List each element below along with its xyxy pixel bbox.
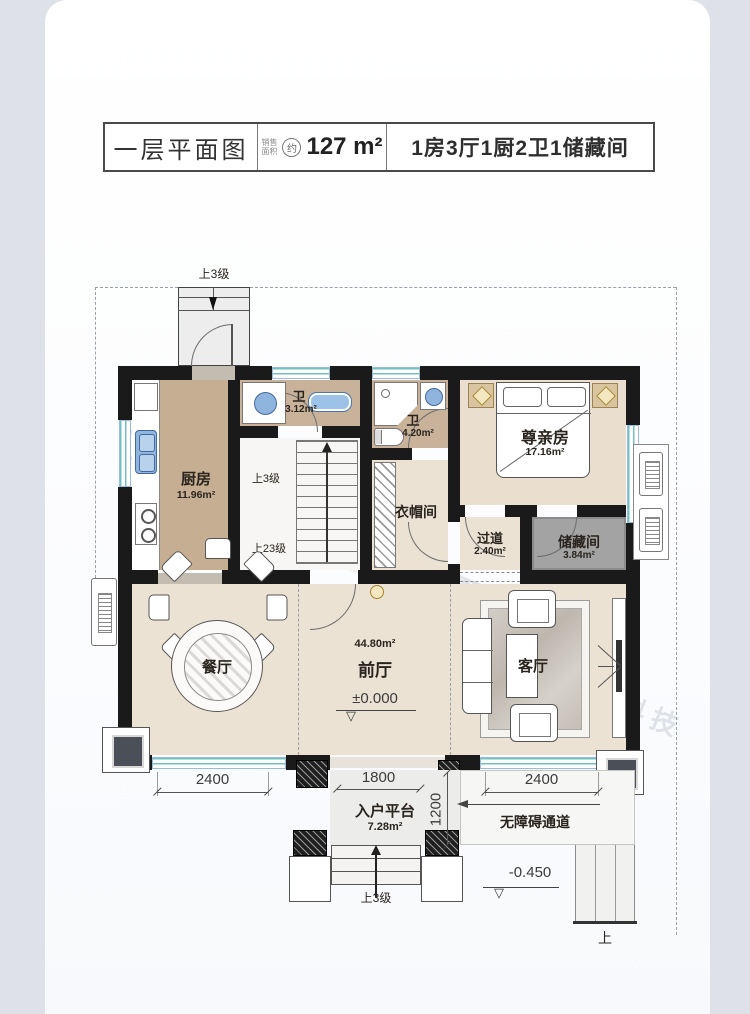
hall-area: 44.80m² <box>330 638 420 650</box>
total-area: 127 m² <box>306 133 382 161</box>
entry-steps-label: 上3级 <box>331 889 421 906</box>
stove <box>135 503 157 545</box>
back-door-leaf <box>231 324 233 366</box>
ramp-edge <box>573 921 637 924</box>
back-steps-label: 上3级 <box>174 265 254 282</box>
ac-unit <box>639 452 663 496</box>
elder-room-label: 尊亲房 <box>503 424 587 448</box>
wall <box>520 570 626 584</box>
corridor-area: 2.40m² <box>464 546 516 557</box>
sale-area-cell: 销售 面积 约 127 m² <box>258 124 387 170</box>
dim-living-width: 2400 <box>485 771 598 788</box>
wall <box>420 366 640 380</box>
dim-platform-depth: 1200 <box>428 790 445 830</box>
bath2-label: 卫 <box>398 410 428 429</box>
eave-line <box>95 287 178 288</box>
page-title: 一层平面图 <box>105 124 258 170</box>
dim-dining-width: 2400 <box>157 771 268 788</box>
bath1-vanity <box>242 382 286 424</box>
barrier-free-label: 无障碍通道 <box>470 812 600 832</box>
column <box>425 830 459 856</box>
column-pedestal <box>421 856 463 902</box>
window <box>119 420 131 487</box>
cloakroom-label: 衣帽间 <box>384 502 448 522</box>
window <box>152 757 286 769</box>
elder-room-area: 17.16m² <box>508 446 582 458</box>
column-pedestal <box>289 856 331 902</box>
dim-line <box>447 772 448 845</box>
window <box>272 367 330 379</box>
nightstand <box>468 383 494 408</box>
wall <box>460 505 465 517</box>
opening-dash <box>460 572 520 573</box>
barrier-free-arrow-icon <box>457 800 468 808</box>
wall <box>520 517 532 570</box>
hall-label: 前厅 <box>330 656 420 681</box>
bath2-basin <box>420 382 446 410</box>
dim-line <box>485 792 598 793</box>
kitchen-sink <box>135 430 157 474</box>
wall <box>240 426 278 438</box>
wall <box>577 505 626 517</box>
storage-area: 3.84m² <box>546 550 612 561</box>
window <box>372 367 420 379</box>
steps-arrow-icon <box>371 845 381 855</box>
zone-divider <box>298 584 299 755</box>
tv <box>616 640 622 692</box>
back-door-sill <box>192 366 235 380</box>
bath1-label: 卫 <box>284 386 314 405</box>
ac-unit <box>639 508 663 552</box>
stair-up23-label: 上23级 <box>236 540 302 556</box>
bath2-area: 4.20m² <box>392 428 444 439</box>
approx-circle-icon: 约 <box>282 138 301 157</box>
outdoor-level: -0.450 <box>490 864 570 881</box>
kitchen-area: 11.96m² <box>158 489 234 501</box>
dining-chair <box>149 595 170 621</box>
room-spec: 1房3厅1厨2卫1储藏间 <box>387 124 653 170</box>
dim-line <box>157 792 268 793</box>
armchair <box>510 704 558 742</box>
wall <box>118 366 132 420</box>
wall <box>626 366 640 425</box>
storage-label: 储藏间 <box>540 532 618 552</box>
wall <box>118 570 158 584</box>
hall-level: ±0.000 <box>330 690 420 707</box>
corridor-label: 过道 <box>462 528 518 547</box>
barrier-free-arrow-line <box>468 804 600 805</box>
wall <box>235 366 272 380</box>
porch-step-arrow-icon <box>209 297 217 310</box>
dining-chair <box>205 538 231 559</box>
level-mark-icon: ▽ <box>346 709 356 722</box>
wall <box>448 380 460 522</box>
wall <box>358 570 460 584</box>
dining-chair <box>267 595 288 621</box>
stair-arrow-icon <box>322 442 332 452</box>
opening-dash <box>460 581 520 582</box>
wall <box>372 448 412 460</box>
zone-divider <box>450 584 451 755</box>
nightstand <box>592 383 618 408</box>
wall <box>505 505 537 517</box>
dim-line <box>337 789 420 790</box>
porch-step-line <box>178 310 250 311</box>
armchair <box>508 590 556 628</box>
eave-line <box>676 287 677 935</box>
corner-pilaster <box>102 727 150 773</box>
window <box>480 757 597 769</box>
fridge <box>134 383 158 411</box>
entry-door-sill <box>330 757 445 768</box>
wall <box>360 380 372 578</box>
stair-up3-label: 上3级 <box>236 470 296 486</box>
ramp <box>575 845 635 923</box>
tv-angle-line <box>598 666 614 667</box>
ac-unit <box>91 578 117 646</box>
level-mark-icon: ▽ <box>494 886 504 899</box>
sale-area-label: 销售 面积 <box>261 138 277 156</box>
kitchen-label: 厨房 <box>158 468 234 489</box>
ramp-up-label: 上 <box>595 928 615 948</box>
column <box>296 760 328 788</box>
bath1-area: 3.12m² <box>278 404 324 415</box>
wall <box>330 366 372 380</box>
wall <box>322 426 360 438</box>
sofa <box>462 618 492 714</box>
dining-label: 餐厅 <box>177 656 257 677</box>
eave-line <box>250 287 676 288</box>
eave-line <box>95 287 96 578</box>
plan-header: 一层平面图 销售 面积 约 127 m² 1房3厅1厨2卫1储藏间 <box>103 122 655 172</box>
dim-entry-width: 1800 <box>337 769 420 786</box>
column <box>293 830 327 856</box>
ceiling-lamp-icon <box>370 585 384 599</box>
stair-arrow-line <box>326 450 328 562</box>
wall <box>626 523 640 770</box>
living-label: 客厅 <box>505 655 561 676</box>
